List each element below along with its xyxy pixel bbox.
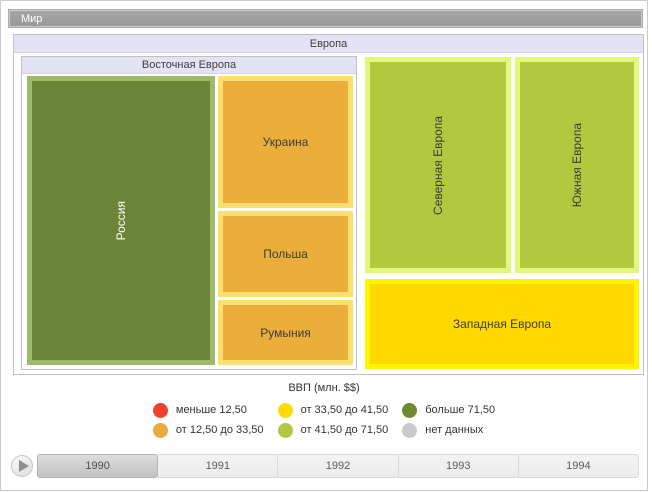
treemap-eastern-europe-panel: Восточная Европа Россия Украина Польша Р… <box>21 56 357 370</box>
play-icon <box>19 460 29 472</box>
timeline-play-button[interactable] <box>11 455 33 477</box>
legend: меньше 12,50 от 12,50 до 33,50 от 33,50 … <box>1 400 647 440</box>
legend-item-label: от 41,50 до 71,50 <box>301 424 389 436</box>
breadcrumb-world-bar[interactable]: Мир <box>8 9 643 28</box>
cell-western-europe-label: Западная Европа <box>453 317 551 331</box>
timeline-year-1990[interactable]: 1990 <box>37 454 158 478</box>
legend-gray-dot-icon <box>402 423 417 438</box>
treemap-cell-romania[interactable]: Румыния <box>218 300 353 365</box>
treemap-cell-poland[interactable]: Польша <box>218 211 353 297</box>
legend-item-more-71-50: больше 71,50 <box>402 403 495 418</box>
timeline-year-1994[interactable]: 1994 <box>519 454 639 478</box>
legend-item-12-50-to-33-50: от 12,50 до 33,50 <box>153 423 264 438</box>
treemap-cell-russia[interactable]: Россия <box>27 76 215 365</box>
legend-item-label: меньше 12,50 <box>176 404 247 416</box>
cell-southern-europe-label: Южная Европа <box>570 123 584 207</box>
legend-item-label: больше 71,50 <box>425 404 495 416</box>
legend-item-33-50-to-41-50: от 33,50 до 41,50 <box>278 403 389 418</box>
treemap-cell-western-europe[interactable]: Западная Европа <box>365 279 639 369</box>
treemap-europe-panel: Европа Восточная Европа Россия Украина П… <box>13 34 644 375</box>
eastern-europe-header-label: Восточная Европа <box>142 59 236 71</box>
timeline-years-bar: 1990 1991 1992 1993 1994 <box>37 454 639 478</box>
legend-item-label: нет данных <box>425 424 483 436</box>
legend-item-no-data: нет данных <box>402 423 495 438</box>
treemap-cell-southern-europe[interactable]: Южная Европа <box>515 57 639 273</box>
eastern-europe-header[interactable]: Восточная Европа <box>22 57 356 74</box>
cell-ukraine-label: Украина <box>263 135 309 149</box>
cell-poland-label: Польша <box>263 247 308 261</box>
timeline-year-1991[interactable]: 1991 <box>158 454 278 478</box>
legend-orange-dot-icon <box>153 423 168 438</box>
legend-light-green-dot-icon <box>278 423 293 438</box>
app-frame: Мир Европа Восточная Европа Россия Украи… <box>0 0 648 491</box>
world-bar-label: Мир <box>21 13 42 25</box>
cell-romania-label: Румыния <box>260 326 311 340</box>
legend-red-dot-icon <box>153 403 168 418</box>
legend-grid: меньше 12,50 от 12,50 до 33,50 от 33,50 … <box>153 400 495 440</box>
legend-item-less-12-50: меньше 12,50 <box>153 403 264 418</box>
legend-item-41-50-to-71-50: от 41,50 до 71,50 <box>278 423 389 438</box>
legend-item-label: от 12,50 до 33,50 <box>176 424 264 436</box>
legend-dark-green-dot-icon <box>402 403 417 418</box>
europe-header-label: Европа <box>310 38 348 50</box>
treemap-cell-northern-europe[interactable]: Северная Европа <box>365 57 511 273</box>
europe-header[interactable]: Европа <box>14 35 643 53</box>
cell-northern-europe-label: Северная Европа <box>431 116 445 215</box>
legend-yellow-dot-icon <box>278 403 293 418</box>
cell-russia-label: Россия <box>114 201 128 240</box>
legend-title: ВВП (млн. $$) <box>1 382 647 394</box>
legend-item-label: от 33,50 до 41,50 <box>301 404 389 416</box>
treemap-cell-ukraine[interactable]: Украина <box>218 76 353 208</box>
timeline-year-1993[interactable]: 1993 <box>399 454 519 478</box>
timeline-year-1992[interactable]: 1992 <box>278 454 398 478</box>
